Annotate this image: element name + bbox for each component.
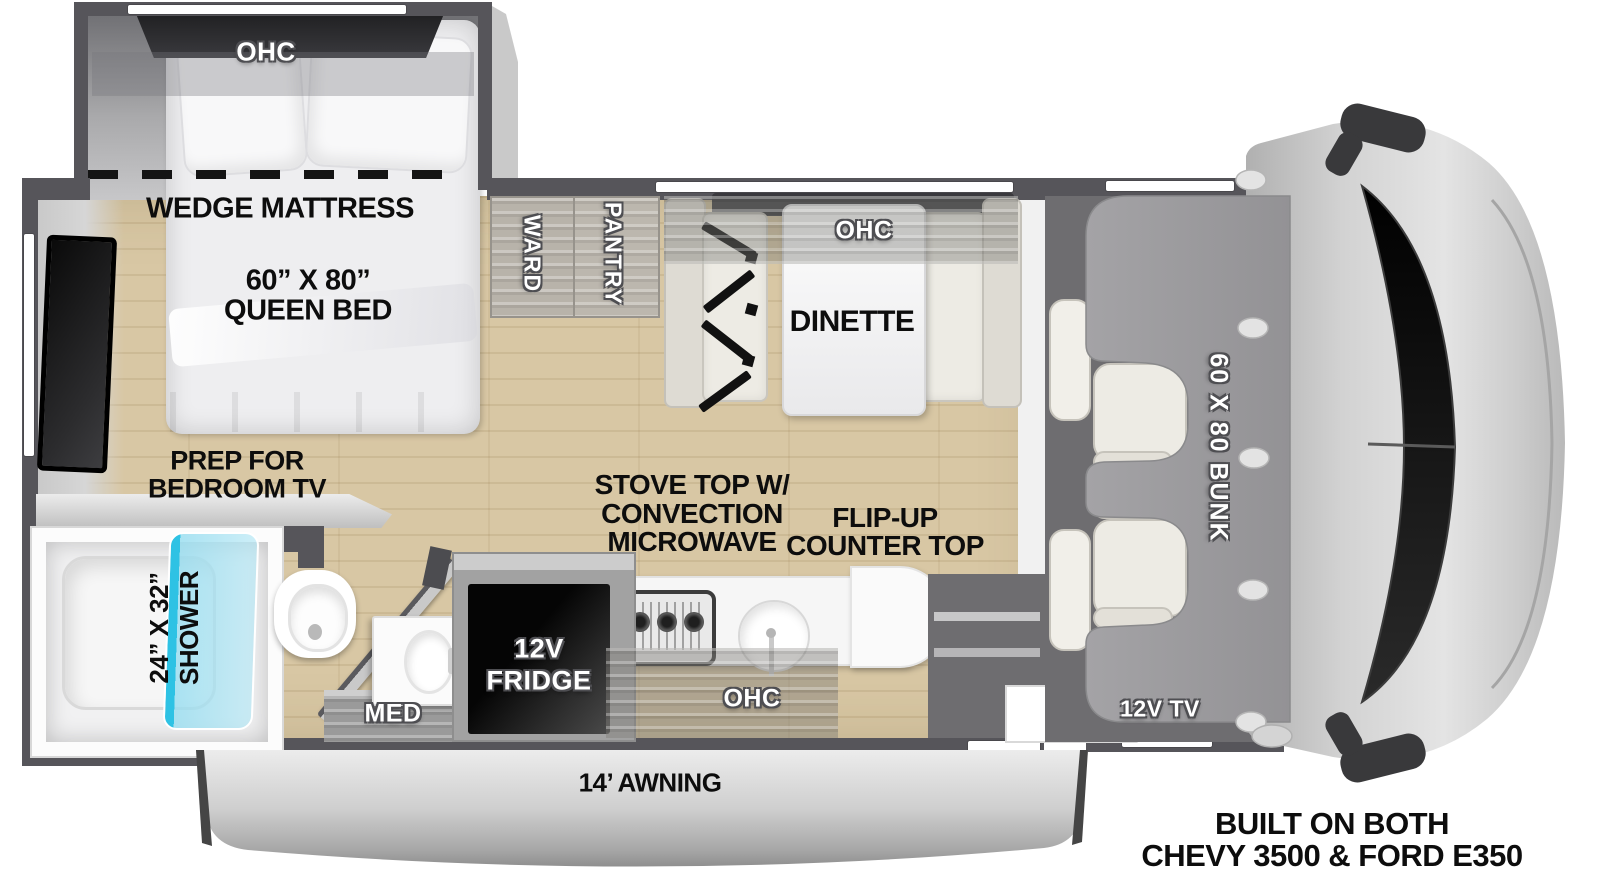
fridge-label-line2: FRIDGE [486,666,591,697]
bunk-end-cap [1252,725,1292,747]
dinette-label: DINETTE [790,305,915,339]
kitchen-ohc-label: OHC [723,685,780,714]
footer-label-line2: CHEVY 3500 & FORD E350 [1141,838,1522,874]
stove-label-line1: STOVE TOP W/ [595,469,790,501]
stove-label-line3: MICROWAVE [607,526,776,558]
exterior-and-cab-graphics [0,0,1600,875]
tv-prep-label-line2: BEDROOM TV [148,474,326,505]
dinette-ohc-label: OHC [835,217,892,246]
footer-label-line1: BUILT ON BOTH [1215,806,1449,842]
rv-floorplan: OHC WEDGE MATTRESS 60” X 80” QUEEN BED P… [0,0,1600,875]
shower-label-block: 24” X 32” SHOWER [144,523,208,733]
tv-prep-label-line1: PREP FOR [170,446,304,477]
wardrobe-label: WARD [519,215,546,293]
awning-label: 14’ AWNING [579,768,722,799]
shower-label: SHOWER [174,523,204,733]
bed-type-label: QUEEN BED [224,295,392,328]
cab-tv-label: 12V TV [1120,696,1200,723]
bed-size-label: 60” X 80” [246,265,370,298]
med-label: MED [364,700,421,729]
shower-size-label: 24” X 32” [144,523,174,733]
bunk-label: 60 X 80 BUNK [1204,353,1233,542]
fridge-label-line1: 12V [514,634,564,665]
flipup-label-line2: COUNTER TOP [786,530,984,562]
wedge-mattress-label: WEDGE MATTRESS [146,193,414,226]
pantry-label: PANTRY [600,202,627,306]
bedroom-ohc-label: OHC [236,37,295,68]
slide-connector-wall [492,6,518,178]
